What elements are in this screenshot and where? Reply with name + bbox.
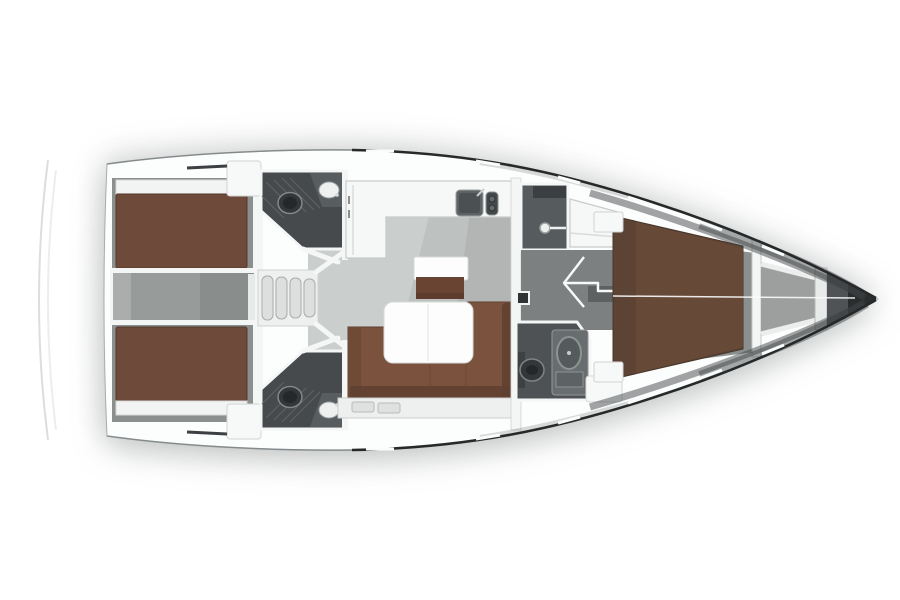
forward-head (516, 322, 590, 400)
toilet-bowl (283, 391, 297, 403)
corridor (521, 250, 613, 330)
shower-room (521, 184, 568, 250)
shower-head (540, 223, 550, 233)
hull-window-slit (187, 166, 227, 168)
toilet-bowl (526, 365, 538, 375)
stove-burner (489, 205, 495, 211)
deck-locker-bottom (227, 404, 261, 439)
sofa-drawer (378, 403, 400, 413)
aft-cabin-starboard (116, 327, 247, 415)
step-tread (276, 277, 287, 319)
deck-locker-top (227, 161, 261, 196)
toilet-bowl (283, 197, 297, 209)
aft-cabin-port-berth (116, 194, 247, 268)
engine-compartment (110, 268, 258, 325)
engine-box-shade (200, 273, 254, 320)
nav-seat-edge (416, 293, 464, 299)
galley-stove (486, 192, 498, 215)
v-berth-shelf-bottom (594, 362, 623, 382)
sofa-backrest-bottom (350, 386, 514, 399)
sofa-drawer (352, 402, 374, 412)
engine-box-highlight (113, 273, 131, 320)
nav-table-top (414, 257, 468, 280)
cabin-door-recess (588, 286, 613, 302)
step-tread (290, 278, 301, 318)
shower-cabinet (533, 186, 566, 198)
step-tread (304, 279, 315, 317)
hull-window-slit (187, 432, 227, 434)
galley-sink-bowl (459, 193, 480, 213)
faucet-dot (335, 193, 339, 197)
drain-dot (567, 351, 571, 355)
forward-bulkhead (752, 240, 761, 357)
engine-box-trim (248, 274, 255, 320)
vanity-drawer (556, 372, 583, 387)
v-berth-shelf-top (594, 212, 623, 232)
mast-post (517, 292, 529, 304)
aft-cabin-starboard-berth (116, 327, 247, 401)
step-tread (262, 276, 273, 320)
yacht-floorplan-screenshot (0, 0, 900, 600)
stove-burner (489, 196, 495, 202)
floorplan-canvas (0, 0, 900, 600)
